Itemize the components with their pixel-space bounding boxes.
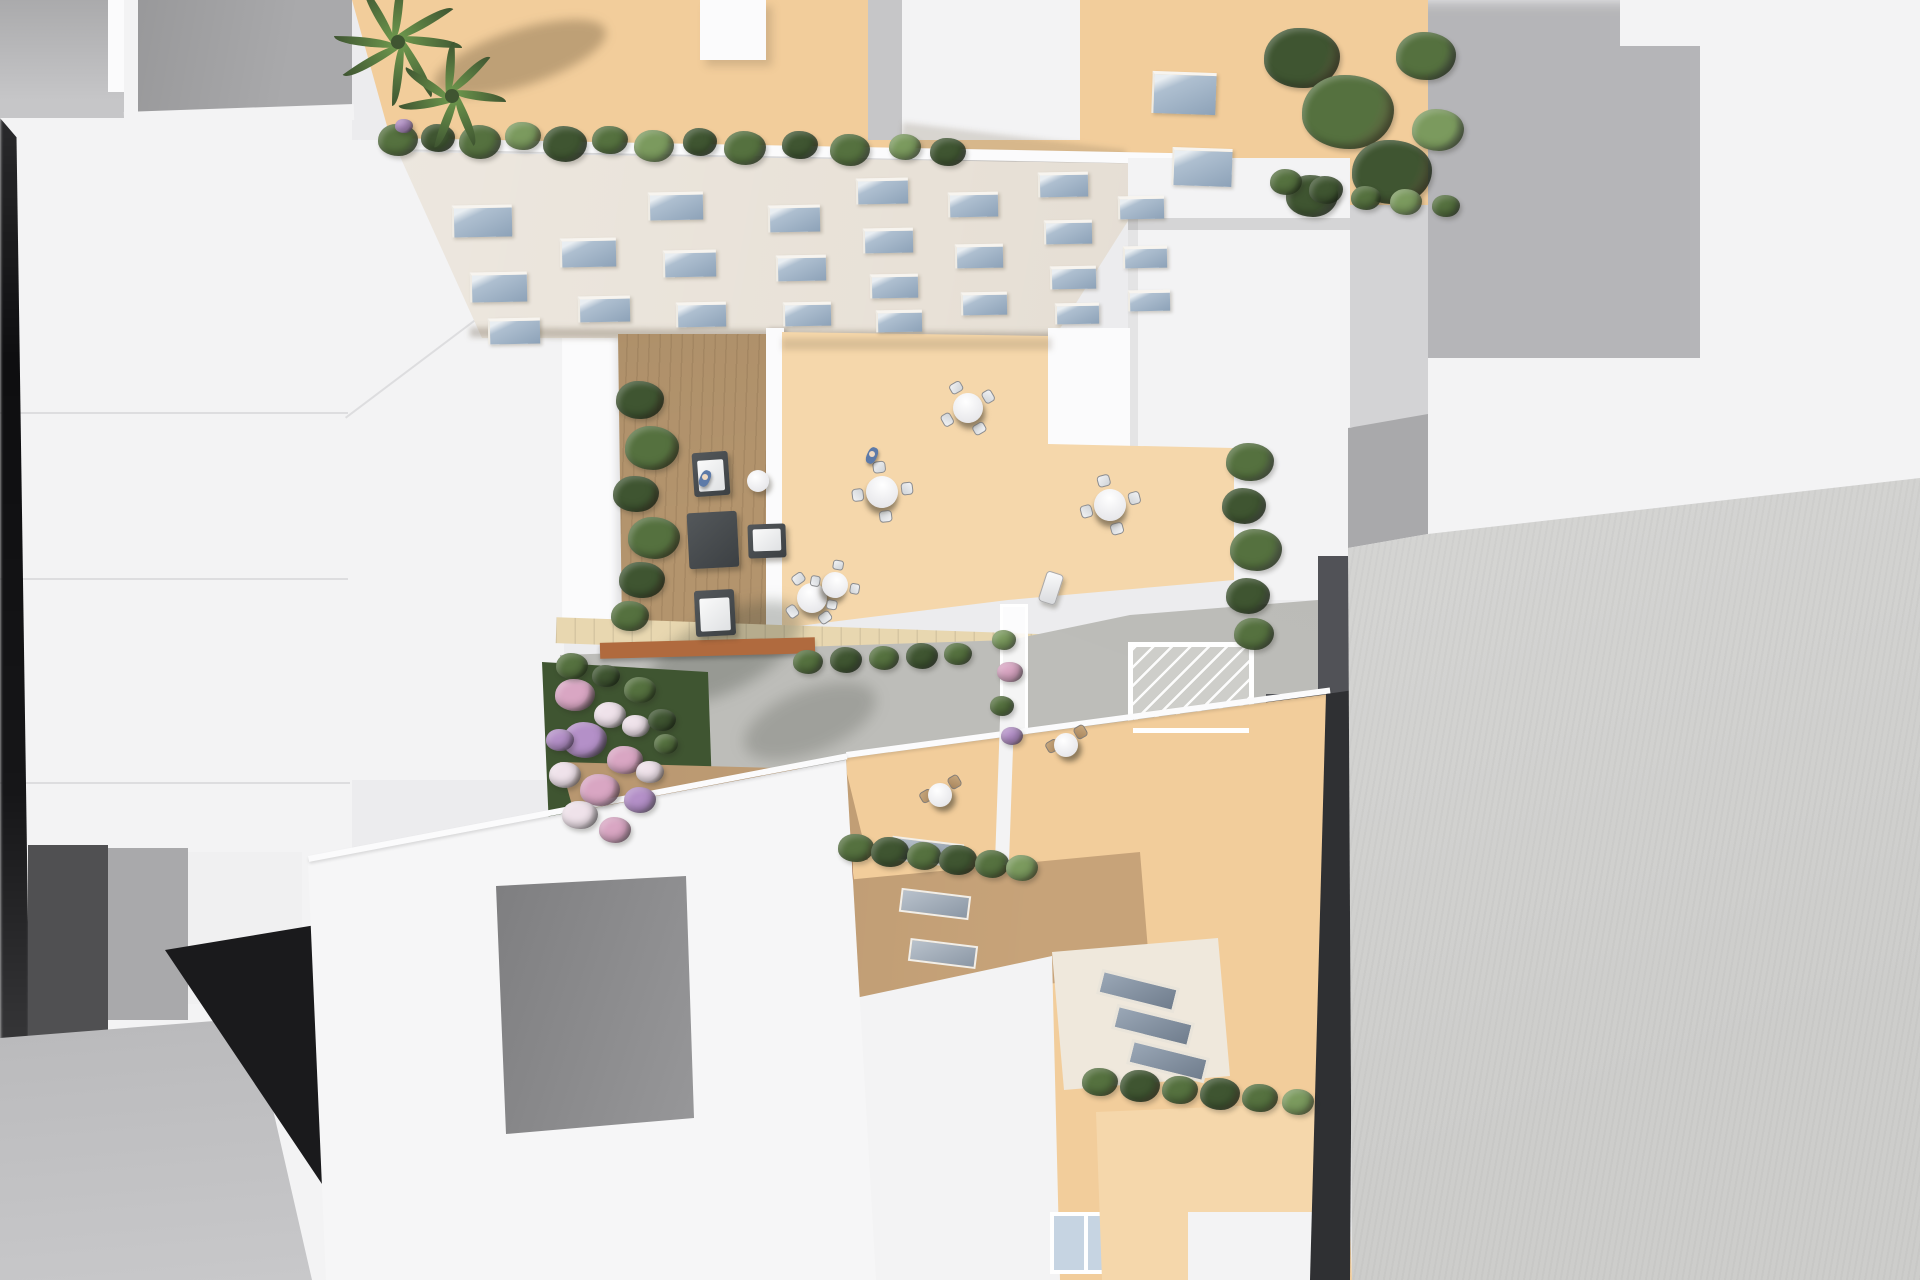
facade-window	[1118, 196, 1164, 220]
shrub-hedge_mid	[871, 837, 909, 867]
shrub-trellis_plants	[992, 630, 1016, 649]
shrub-parapet_row	[395, 119, 413, 133]
shrub-hedge_bottom	[1120, 1070, 1160, 1102]
facade-window	[470, 272, 528, 303]
wall-window-slit	[899, 888, 971, 920]
facade-window	[1123, 246, 1167, 269]
roof-skylight	[1096, 969, 1180, 1014]
flower-cluster	[622, 715, 650, 737]
facade-window	[648, 192, 703, 221]
flower-cluster	[599, 817, 631, 843]
facade-window	[1055, 303, 1099, 325]
shrub-strip_bushes	[1390, 189, 1422, 215]
dining-chair	[1108, 521, 1124, 536]
facade-window	[955, 244, 1003, 269]
bistro-table	[928, 783, 952, 807]
flower-cluster	[654, 734, 678, 753]
shrub-parapet_row	[592, 126, 628, 155]
facade-window	[676, 302, 726, 328]
shrub-strip_bushes	[1351, 186, 1381, 210]
shrub-terrace_hedge_col	[1226, 578, 1270, 613]
shrub-hedge_bottom	[1200, 1078, 1240, 1110]
shrub-left_column	[625, 426, 679, 469]
shrub-left_column	[611, 601, 649, 631]
shrub-hedge_mid	[907, 842, 941, 869]
flower-cluster	[648, 709, 676, 731]
facade-window	[961, 292, 1007, 316]
facade-window	[1050, 266, 1096, 290]
dining-table	[1088, 483, 1132, 527]
dining-chair	[872, 461, 887, 475]
lounge-cushion	[753, 529, 782, 552]
flower-cluster	[562, 801, 598, 830]
shrub-left_column	[613, 476, 659, 513]
shrub-hedge_mid	[975, 850, 1009, 877]
flower-cluster	[556, 653, 588, 679]
facade-window	[1038, 172, 1088, 198]
shrub-hedge_bottom	[1282, 1089, 1314, 1115]
facade-window	[870, 274, 918, 299]
shrub-right_trees	[1396, 32, 1456, 80]
dining-chair	[1096, 473, 1112, 488]
facade-window	[768, 205, 820, 233]
shrub-parapet_row	[930, 138, 966, 167]
shrub-hedge_bottom	[1242, 1084, 1278, 1113]
shrub-left_column	[616, 381, 664, 419]
shrub-terrace_hedge_col	[1234, 618, 1274, 650]
flower-cluster	[624, 787, 656, 813]
facade-window	[1128, 290, 1170, 312]
shrub-hedge_mid	[1006, 855, 1038, 881]
facade-window	[663, 250, 716, 278]
person-head	[702, 474, 708, 480]
flower-cluster	[592, 665, 620, 687]
shrub-terrace_hedge_col	[1226, 443, 1274, 481]
shrub-patio_planter	[906, 643, 938, 669]
shrub-hedge_bottom	[1162, 1076, 1198, 1105]
dining-chair	[849, 582, 861, 594]
facade-window	[488, 318, 540, 345]
flower-cluster	[555, 679, 595, 711]
facade-window	[863, 228, 913, 254]
dining-chair	[900, 482, 914, 497]
dining-chair	[851, 488, 865, 503]
shrub-parapet_row	[889, 134, 921, 160]
greenhouse-mullion	[1133, 728, 1249, 733]
wall-window-slit	[908, 938, 978, 969]
shrub-right_trees	[1412, 109, 1464, 151]
shrub-left_column	[619, 562, 665, 599]
terrace-window	[1151, 71, 1216, 115]
lounge-sidetable	[747, 470, 769, 492]
sun-lounger	[1037, 570, 1064, 606]
shrub-terrace_hedge_col	[1230, 529, 1282, 571]
person-head	[869, 451, 875, 457]
flower-cluster	[546, 729, 574, 751]
bistro-table	[1054, 733, 1078, 757]
shrub-patio_planter	[944, 643, 972, 665]
roof-skylight	[1111, 1004, 1195, 1049]
flower-cluster	[549, 762, 581, 788]
shrub-trellis_plants	[1001, 727, 1023, 745]
lounge-cushion	[699, 597, 731, 632]
shrub-strip_bushes	[1432, 195, 1460, 217]
shrub-trellis_plants	[997, 662, 1023, 683]
shrub-patio_planter	[830, 647, 862, 673]
shrub-parapet_row	[830, 134, 870, 166]
dining-chair	[1126, 491, 1141, 507]
shrub-right_trees	[1302, 75, 1394, 149]
shrub-left_column	[628, 517, 680, 559]
shrub-hedge_mid	[838, 834, 874, 863]
dining-chair	[878, 510, 893, 524]
facade-window	[783, 302, 831, 327]
facade-window	[578, 296, 630, 323]
facade-window	[856, 178, 908, 205]
shrub-parapet_row	[724, 131, 766, 165]
shrub-hedge_bottom	[1082, 1068, 1118, 1097]
shrub-parapet_row	[683, 128, 717, 155]
dining-chair	[832, 559, 844, 571]
flower-cluster	[636, 761, 664, 783]
shrub-parapet_row	[505, 122, 541, 151]
shrub-parapet_row	[782, 131, 818, 160]
facade-window	[776, 255, 826, 282]
lounge-ottoman	[687, 511, 740, 570]
lounge-sofa	[694, 589, 736, 637]
shrub-hedge_mid	[939, 845, 977, 875]
lounge-cube	[747, 523, 786, 558]
facade-window	[560, 238, 616, 268]
shrub-strip_bushes	[1309, 176, 1343, 203]
scene-objects-layer	[0, 0, 1920, 1280]
shrub-trellis_plants	[990, 696, 1014, 715]
facade-window	[948, 192, 998, 218]
shrub-patio_planter	[869, 646, 899, 670]
facade-window	[876, 310, 922, 333]
dining-table	[860, 470, 905, 515]
facade-window	[452, 204, 513, 237]
palm-crown-center	[391, 35, 405, 49]
shrub-parapet_row	[634, 130, 674, 162]
shrub-patio_planter	[793, 650, 823, 674]
flower-cluster	[624, 677, 656, 703]
shrub-parapet_row	[543, 126, 587, 161]
terrace-window	[1171, 147, 1232, 187]
aerial-render-canvas	[0, 0, 1920, 1280]
shrub-terrace_hedge_col	[1222, 488, 1266, 523]
palm-crown-center	[445, 89, 459, 103]
dining-chair	[825, 599, 837, 611]
facade-window	[1044, 220, 1092, 245]
dining-chair	[1078, 503, 1093, 519]
shrub-strip_bushes	[1270, 169, 1302, 195]
dining-chair	[980, 388, 996, 405]
